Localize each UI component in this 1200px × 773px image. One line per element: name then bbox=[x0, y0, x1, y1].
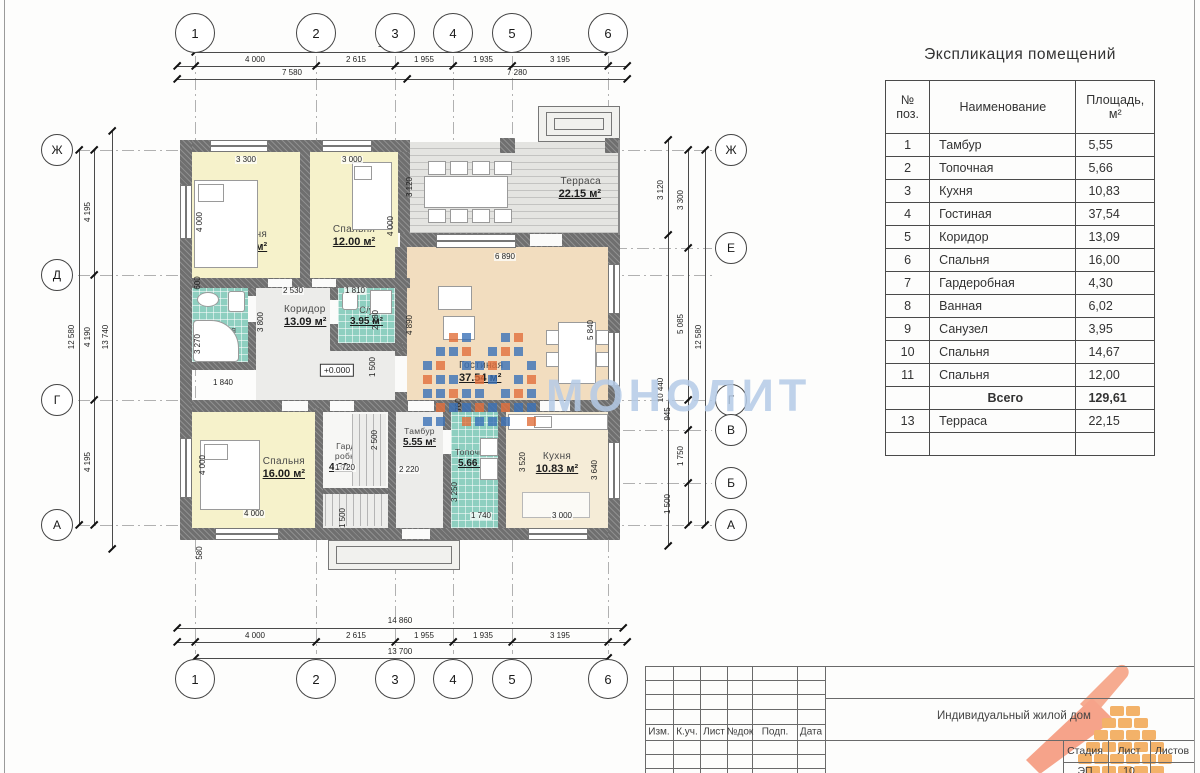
axis-marker: 6 bbox=[588, 13, 628, 53]
dimension-label: 3 195 bbox=[549, 632, 571, 640]
watermark-mosaic-square bbox=[514, 403, 523, 412]
table-cell: Спальня bbox=[930, 341, 1076, 364]
window bbox=[180, 438, 192, 498]
wall bbox=[300, 152, 310, 278]
table-cell: Коридор bbox=[930, 226, 1076, 249]
watermark-mosaic-square bbox=[449, 333, 458, 342]
watermark-mosaic-square bbox=[436, 417, 445, 426]
window bbox=[528, 528, 588, 540]
watermark-mosaic-square bbox=[449, 375, 458, 384]
table-row: 8Ванная6,02 bbox=[886, 295, 1155, 318]
table-row: 11Спальня12,00 bbox=[886, 364, 1155, 387]
dimension-line bbox=[177, 79, 627, 80]
dimension-label: 1 955 bbox=[413, 632, 435, 640]
table-cell: 8 bbox=[886, 295, 930, 318]
window bbox=[322, 140, 372, 152]
wardrobe-shelving bbox=[352, 414, 386, 486]
room-label-name: Спальня bbox=[263, 456, 305, 467]
axis-marker: 3 bbox=[375, 13, 415, 53]
title-block-line bbox=[645, 724, 825, 725]
dimension-label: 1 500 bbox=[339, 507, 347, 529]
wall bbox=[323, 488, 388, 494]
drawing-sheet: 13 7004 0002 6151 9551 9353 1957 5807 28… bbox=[0, 0, 1200, 773]
window bbox=[180, 185, 192, 239]
explication-title: Экспликация помещений bbox=[885, 46, 1155, 64]
watermark-mosaic-square bbox=[475, 403, 484, 412]
table-cell: 11 bbox=[886, 364, 930, 387]
terrace-steps bbox=[554, 118, 604, 130]
table-cell: 4 bbox=[886, 203, 930, 226]
dimension-label: 2 530 bbox=[282, 287, 304, 295]
dimension-label: 1 935 bbox=[472, 632, 494, 640]
table-row: 2Топочная5,66 bbox=[886, 157, 1155, 180]
dimension-line bbox=[668, 140, 669, 546]
axis-marker: 1 bbox=[175, 659, 215, 699]
furniture-chair bbox=[472, 209, 490, 223]
dimension-label: 3 000 bbox=[551, 512, 573, 520]
watermark-mosaic-square bbox=[527, 361, 536, 370]
table-cell: Тамбур bbox=[930, 134, 1076, 157]
header-name: Наименование bbox=[930, 81, 1076, 134]
dimension-tick bbox=[108, 545, 116, 553]
watermark-mosaic-square bbox=[475, 361, 484, 370]
watermark-mosaic-square bbox=[488, 417, 497, 426]
axis-marker: 4 bbox=[433, 13, 473, 53]
room-label-area: 22.15 м² bbox=[559, 188, 601, 200]
level-mark: +0.000 bbox=[320, 364, 354, 377]
furniture-chair bbox=[428, 209, 446, 223]
title-block-line bbox=[825, 666, 826, 773]
table-cell: Всего bbox=[930, 387, 1076, 410]
title-block-line bbox=[752, 666, 753, 773]
table-cell: Гардеробная bbox=[930, 272, 1076, 295]
door-opening bbox=[395, 356, 407, 392]
watermark-mosaic-square bbox=[501, 389, 510, 398]
dimension-label: 4 195 bbox=[84, 451, 92, 473]
title-block-line bbox=[1108, 740, 1109, 773]
furniture-chair bbox=[494, 209, 512, 223]
table-cell: 10,83 bbox=[1076, 180, 1155, 203]
dimension-label: 3 520 bbox=[519, 451, 527, 473]
furniture-chair bbox=[450, 209, 468, 223]
watermark-mosaic-square bbox=[462, 361, 471, 370]
table-cell: 3 bbox=[886, 180, 930, 203]
revision-column-label: Лист bbox=[703, 727, 725, 738]
table-row: 3Кухня10,83 bbox=[886, 180, 1155, 203]
dimension-label: 4 195 bbox=[84, 201, 92, 223]
table-row: 4Гостиная37,54 bbox=[886, 203, 1155, 226]
title-block-line bbox=[1063, 762, 1194, 763]
watermark-mosaic-square bbox=[436, 375, 445, 384]
table-row: 10Спальня14,67 bbox=[886, 341, 1155, 364]
table-cell: 37,54 bbox=[1076, 203, 1155, 226]
axis-marker: Д bbox=[41, 259, 73, 291]
dimension-label: 3 250 bbox=[451, 481, 459, 503]
dimension-label: 6 890 bbox=[494, 253, 516, 261]
table-row: 1Тамбур5,55 bbox=[886, 134, 1155, 157]
dimension-line bbox=[688, 150, 689, 525]
table-row: Всего129,61 bbox=[886, 387, 1155, 410]
door-opening bbox=[330, 300, 338, 324]
room-label-name: Кухня bbox=[543, 451, 571, 462]
watermark-mosaic-square bbox=[423, 417, 432, 426]
table-cell: 10 bbox=[886, 341, 930, 364]
revision-column-label: К.уч. bbox=[676, 727, 698, 738]
watermark-mosaic-square bbox=[514, 347, 523, 356]
dimension-line bbox=[195, 52, 608, 53]
furniture-chair bbox=[450, 161, 468, 175]
dimension-line bbox=[195, 658, 608, 659]
room-label-name: Коридор bbox=[284, 304, 326, 315]
furniture-pillow bbox=[204, 444, 228, 460]
watermark-mosaic-square bbox=[462, 347, 471, 356]
dimension-tick bbox=[623, 75, 631, 83]
table-cell: Санузел bbox=[930, 318, 1076, 341]
watermark-mosaic-square bbox=[423, 389, 432, 398]
table-row: 9Санузел3,95 bbox=[886, 318, 1155, 341]
dimension-label: 3 120 bbox=[657, 179, 665, 201]
table-cell: Гостиная bbox=[930, 203, 1076, 226]
dimension-label: 12 580 bbox=[695, 324, 703, 350]
title-block-line bbox=[645, 680, 825, 681]
dimension-tick bbox=[664, 542, 672, 550]
watermark-mosaic-square bbox=[475, 417, 484, 426]
dimension-tick bbox=[619, 624, 627, 632]
watermark-mosaic-square bbox=[436, 361, 445, 370]
furniture-pillow bbox=[354, 166, 372, 180]
wall bbox=[388, 412, 396, 528]
dimension-label: 4 000 bbox=[196, 211, 204, 233]
dimension-label: 1 750 bbox=[677, 445, 685, 467]
dimension-label: 5 840 bbox=[587, 319, 595, 341]
porch-steps bbox=[336, 546, 452, 564]
watermark-mosaic-square bbox=[501, 403, 510, 412]
furniture-chair bbox=[494, 161, 512, 175]
dimension-label: 4 000 bbox=[244, 56, 266, 64]
dimension-label: 13 700 bbox=[387, 648, 413, 656]
watermark-monolit-logo bbox=[423, 333, 553, 443]
watermark-mosaic-square bbox=[462, 389, 471, 398]
room-label-area: 13.09 м² bbox=[284, 316, 326, 328]
watermark-mosaic-square bbox=[462, 333, 471, 342]
table-cell: 9 bbox=[886, 318, 930, 341]
table-header-row: № поз. Наименование Площадь, м² bbox=[886, 81, 1155, 134]
sheets-header: Листов bbox=[1155, 745, 1189, 757]
dimension-line bbox=[79, 150, 80, 525]
table-cell: Спальня bbox=[930, 364, 1076, 387]
table-cell: Ванная bbox=[930, 295, 1076, 318]
watermark-mosaic-square bbox=[462, 403, 471, 412]
table-cell: Топочная bbox=[930, 157, 1076, 180]
axis-marker: 2 bbox=[296, 659, 336, 699]
title-block-line bbox=[645, 754, 825, 755]
door-opening bbox=[282, 401, 308, 411]
wall bbox=[192, 362, 256, 370]
window bbox=[210, 140, 268, 152]
dimension-label: 3 640 bbox=[591, 459, 599, 481]
watermark-mosaic-square bbox=[514, 333, 523, 342]
dimension-label: 1 810 bbox=[344, 287, 366, 295]
terrace-post bbox=[500, 138, 515, 153]
terrace-edge bbox=[618, 140, 620, 235]
watermark-mosaic-square bbox=[501, 347, 510, 356]
watermark-mosaic-square bbox=[488, 375, 497, 384]
room-label-area: 10.83 м² bbox=[536, 463, 578, 475]
table-cell: 5,55 bbox=[1076, 134, 1155, 157]
axis-marker: 2 bbox=[296, 13, 336, 53]
axis-marker: 5 bbox=[492, 13, 532, 53]
dimension-label: 580 bbox=[196, 545, 204, 560]
watermark-mosaic-square bbox=[449, 403, 458, 412]
watermark-mosaic-square bbox=[501, 333, 510, 342]
dimension-line bbox=[177, 628, 623, 629]
title-block-line bbox=[825, 698, 1194, 699]
furniture-terrace-table bbox=[424, 176, 508, 208]
table-cell: 22,15 bbox=[1076, 410, 1155, 433]
revision-column-label: Подп. bbox=[762, 727, 789, 738]
axis-marker: 3 bbox=[375, 659, 415, 699]
door-opening bbox=[312, 279, 336, 287]
dimension-label: 4 190 bbox=[84, 326, 92, 348]
header-area: Площадь, м² bbox=[1076, 81, 1155, 134]
axis-marker: Е bbox=[715, 232, 747, 264]
table-cell: Кухня bbox=[930, 180, 1076, 203]
stage-value: ЭП bbox=[1077, 765, 1092, 773]
dimension-line bbox=[94, 150, 95, 525]
watermark-mosaic-square bbox=[514, 389, 523, 398]
revision-column-label: Изм. bbox=[648, 727, 669, 738]
table-cell: 1 bbox=[886, 134, 930, 157]
furniture-boiler-unit bbox=[480, 458, 498, 480]
dimension-label: 2 220 bbox=[398, 466, 420, 474]
window bbox=[608, 264, 620, 314]
room-label-area: 12.00 м² bbox=[333, 236, 375, 248]
table-row: 13Терраса22,15 bbox=[886, 410, 1155, 433]
dimension-tick bbox=[623, 638, 631, 646]
revision-column-label: Дата bbox=[800, 727, 822, 738]
title-block-line bbox=[645, 666, 646, 773]
axis-marker: 6 bbox=[588, 659, 628, 699]
stage-header: Стадия bbox=[1067, 745, 1103, 757]
dimension-label: 1 955 bbox=[413, 56, 435, 64]
title-block-line bbox=[797, 666, 798, 773]
dimension-label: 4 890 bbox=[406, 314, 414, 336]
axis-marker: Ж bbox=[41, 134, 73, 166]
door-opening bbox=[248, 296, 256, 322]
table-cell: 5 bbox=[886, 226, 930, 249]
sheet-frame-left bbox=[4, 0, 5, 773]
dimension-label: 2 615 bbox=[345, 632, 367, 640]
title-block-line bbox=[645, 709, 825, 710]
watermark-mosaic-square bbox=[449, 347, 458, 356]
table-row bbox=[886, 433, 1155, 456]
axis-marker: 5 bbox=[492, 659, 532, 699]
dimension-label: 2 500 bbox=[371, 429, 379, 451]
dimension-label: 3 800 bbox=[257, 311, 265, 333]
table-cell: Терраса bbox=[930, 410, 1076, 433]
watermark-mosaic-square bbox=[449, 389, 458, 398]
watermark-mosaic-square bbox=[475, 389, 484, 398]
table-cell: 5,66 bbox=[1076, 157, 1155, 180]
title-block-line bbox=[645, 768, 825, 769]
title-block-line bbox=[673, 666, 674, 773]
dimension-label: 5 085 bbox=[677, 313, 685, 335]
table-cell: 12,00 bbox=[1076, 364, 1155, 387]
dimension-label: 4 000 bbox=[244, 632, 266, 640]
table-cell: 14,67 bbox=[1076, 341, 1155, 364]
dimension-label: 12 580 bbox=[68, 324, 76, 350]
axis-marker: А bbox=[715, 509, 747, 541]
title-block-line bbox=[1150, 740, 1151, 773]
dimension-label: 7 280 bbox=[506, 69, 528, 77]
watermark-mosaic-square bbox=[488, 403, 497, 412]
watermark-mosaic-square bbox=[527, 375, 536, 384]
furniture-cabinet bbox=[438, 286, 472, 310]
axis-marker: Б bbox=[715, 467, 747, 499]
sheet-header: Лист bbox=[1118, 745, 1141, 757]
door-opening bbox=[402, 529, 430, 539]
table-cell: 6,02 bbox=[1076, 295, 1155, 318]
table-cell bbox=[930, 433, 1076, 456]
dimension-label: 14 860 bbox=[387, 617, 413, 625]
wall bbox=[330, 343, 403, 351]
watermark-mosaic-square bbox=[501, 361, 510, 370]
furniture-chair bbox=[428, 161, 446, 175]
watermark-mosaic-square bbox=[475, 375, 484, 384]
watermark-mosaic-square bbox=[488, 361, 497, 370]
table-cell: 6 bbox=[886, 249, 930, 272]
table-row: 7Гардеробная4,30 bbox=[886, 272, 1155, 295]
window bbox=[436, 234, 516, 248]
watermark-mosaic-square bbox=[436, 389, 445, 398]
dimension-label: 4 000 bbox=[199, 454, 207, 476]
sheet-frame-right bbox=[1194, 0, 1195, 773]
watermark-mosaic-square bbox=[514, 375, 523, 384]
dimension-label: 1 740 bbox=[470, 512, 492, 520]
dimension-label: 1 500 bbox=[664, 493, 672, 515]
watermark-mosaic-square bbox=[527, 403, 536, 412]
dimension-label: 7 580 bbox=[281, 69, 303, 77]
room-label-name: Терраса bbox=[561, 176, 601, 187]
table-row: 5Коридор13,09 bbox=[886, 226, 1155, 249]
dimension-line bbox=[705, 150, 706, 525]
entry-stair-hatch bbox=[325, 494, 387, 526]
dimension-label: 600 bbox=[194, 275, 202, 290]
window bbox=[215, 528, 279, 540]
dimension-label: 3 270 bbox=[194, 333, 202, 355]
title-block-line bbox=[700, 666, 701, 773]
watermark-mosaic-square bbox=[462, 417, 471, 426]
furniture-chair bbox=[472, 161, 490, 175]
explication-table: № поз. Наименование Площадь, м² 1Тамбур5… bbox=[885, 80, 1155, 456]
table-cell: Спальня bbox=[930, 249, 1076, 272]
watermark-mosaic-square bbox=[527, 389, 536, 398]
title-block-line bbox=[645, 694, 825, 695]
title-block-line bbox=[1063, 740, 1064, 773]
watermark-mosaic-square bbox=[488, 347, 497, 356]
room-label-area: 16.00 м² bbox=[263, 468, 305, 480]
dimension-label: 2 180 bbox=[372, 309, 380, 331]
watermark-mosaic-square bbox=[423, 375, 432, 384]
watermark-monolit-text: МОНОЛИТ bbox=[546, 370, 811, 422]
watermark-mosaic-square bbox=[423, 361, 432, 370]
furniture-pillow bbox=[198, 184, 224, 202]
axis-marker: Г bbox=[41, 384, 73, 416]
dimension-label: 3 300 bbox=[235, 156, 257, 164]
axis-marker: 4 bbox=[433, 659, 473, 699]
header-num: № поз. bbox=[886, 81, 930, 134]
table-row: 6Спальня16,00 bbox=[886, 249, 1155, 272]
title-block-line bbox=[727, 666, 728, 773]
dimension-label: 4 000 bbox=[243, 510, 265, 518]
door-opening bbox=[530, 234, 562, 246]
window bbox=[608, 442, 620, 499]
watermark-mosaic-square bbox=[527, 417, 536, 426]
table-cell: 16,00 bbox=[1076, 249, 1155, 272]
dimension-label: 3 195 bbox=[549, 56, 571, 64]
watermark-mosaic-square bbox=[436, 347, 445, 356]
furniture-sink bbox=[197, 292, 219, 307]
table-cell bbox=[886, 433, 930, 456]
table-cell bbox=[1076, 433, 1155, 456]
dimension-label: 2 615 bbox=[345, 56, 367, 64]
table-cell: 4,30 bbox=[1076, 272, 1155, 295]
project-name: Индивидуальный жилой дом bbox=[937, 710, 1091, 722]
watermark-mosaic-square bbox=[436, 403, 445, 412]
table-cell: 13 bbox=[886, 410, 930, 433]
furniture-toilet bbox=[228, 291, 245, 312]
dimension-label: 3 300 bbox=[677, 189, 685, 211]
dimension-tick bbox=[623, 62, 631, 70]
table-cell: 7 bbox=[886, 272, 930, 295]
wall bbox=[315, 408, 323, 528]
dimension-line bbox=[112, 131, 113, 549]
dimension-label: 1 720 bbox=[334, 464, 356, 472]
axis-marker: Ж bbox=[715, 134, 747, 166]
sheet-value: 10 bbox=[1123, 765, 1135, 773]
table-cell: 129,61 bbox=[1076, 387, 1155, 410]
revision-column-label: №док bbox=[727, 727, 754, 738]
dimension-label: 1 500 bbox=[369, 356, 377, 378]
table-cell: 13,09 bbox=[1076, 226, 1155, 249]
dimension-label: 1 840 bbox=[212, 379, 234, 387]
door-opening bbox=[330, 401, 354, 411]
table-cell: 2 bbox=[886, 157, 930, 180]
axis-marker: 1 bbox=[175, 13, 215, 53]
dimension-label: 3 000 bbox=[341, 156, 363, 164]
table-cell bbox=[886, 387, 930, 410]
dimension-label: 1 935 bbox=[472, 56, 494, 64]
axis-marker: А bbox=[41, 509, 73, 541]
dimension-label: 3 120 bbox=[406, 176, 414, 198]
dimension-line bbox=[177, 66, 627, 67]
watermark-mosaic-square bbox=[501, 417, 510, 426]
dimension-line bbox=[177, 642, 627, 643]
dimension-label: 13 740 bbox=[102, 324, 110, 350]
dimension-label: 4 000 bbox=[387, 215, 395, 237]
table-cell: 3,95 bbox=[1076, 318, 1155, 341]
